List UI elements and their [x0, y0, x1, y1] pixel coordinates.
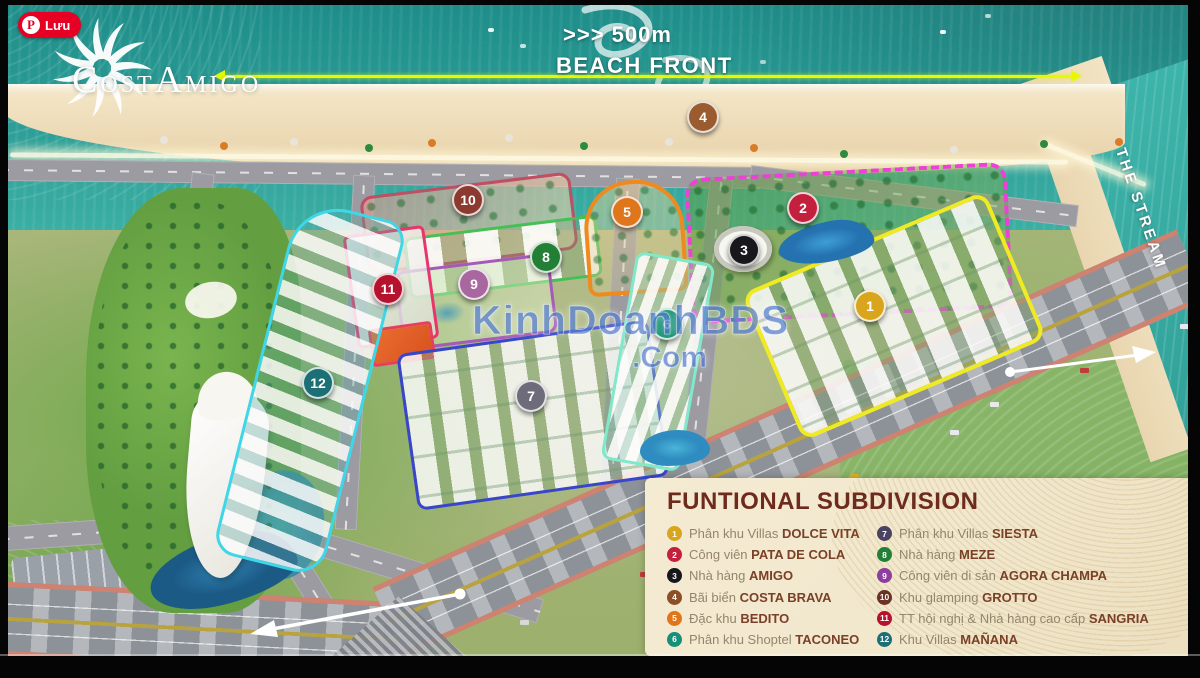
legend-title: FUNTIONAL SUBDIVISION	[667, 488, 978, 516]
legend-badge-7: 7	[877, 526, 892, 541]
legend-item-8: 8Nhà hàng MEZE	[877, 547, 1187, 562]
watermark-line1: KinhDoanhBĐS	[472, 300, 742, 341]
legend-badge-6: 6	[667, 632, 682, 647]
legend-label-11: TT hội nghị & Nhà hàng cao cấp SANGRIA	[899, 611, 1149, 626]
legend-badge-3: 3	[667, 568, 682, 583]
frame-bar	[0, 656, 1200, 678]
legend-item-1: 1Phân khu Villas DOLCE VITA	[667, 526, 872, 541]
beach-distance-label: >>> 500m	[563, 22, 672, 48]
legend-label-5: Đặc khu BEDITO	[689, 611, 789, 626]
legend-item-4: 4Bãi biển COSTA BRAVA	[667, 590, 872, 605]
pinterest-save-button[interactable]: P Lưu	[18, 12, 81, 38]
legend-label-4: Bãi biển COSTA BRAVA	[689, 590, 832, 605]
legend-badge-8: 8	[877, 547, 892, 562]
legend-badge-11: 11	[877, 611, 892, 626]
legend-item-5: 5Đặc khu BEDITO	[667, 611, 872, 626]
save-button-label: Lưu	[45, 18, 70, 33]
legend-panel: FUNTIONAL SUBDIVISION 1Phân khu Villas D…	[645, 478, 1192, 656]
watermark: KinhDoanhBĐS .Com	[472, 300, 742, 373]
legend-badge-4: 4	[667, 590, 682, 605]
frame-bar	[1188, 0, 1200, 678]
legend-column-1: 1Phân khu Villas DOLCE VITA2Công viên PA…	[667, 526, 872, 647]
legend-badge-9: 9	[877, 568, 892, 583]
legend-column-2: 7Phân khu Villas SIESTA8Nhà hàng MEZE9Cô…	[877, 526, 1187, 647]
legend-badge-12: 12	[877, 632, 892, 647]
beach-umbrellas-decoration	[160, 136, 168, 144]
restaurant-amigo-building	[714, 226, 772, 272]
beach-front-label: BEACH FRONT	[556, 53, 733, 79]
legend-badge-5: 5	[667, 611, 682, 626]
legend-item-9: 9Công viên di sản AGORA CHAMPA	[877, 568, 1187, 583]
pinterest-icon: P	[22, 16, 40, 34]
legend-item-10: 10Khu glamping GROTTO	[877, 590, 1187, 605]
legend-badge-1: 1	[667, 526, 682, 541]
legend-label-6: Phân khu Shoptel TACONEO	[689, 632, 859, 647]
legend-badge-10: 10	[877, 590, 892, 605]
watermark-line2: .Com	[632, 343, 742, 373]
legend-badge-2: 2	[667, 547, 682, 562]
legend-item-7: 7Phân khu Villas SIESTA	[877, 526, 1187, 541]
legend-item-3: 3Nhà hàng AMIGO	[667, 568, 872, 583]
legend-label-3: Nhà hàng AMIGO	[689, 568, 793, 583]
traffic-direction-arrow-right	[998, 342, 1163, 382]
legend-label-12: Khu Villas MAÑANA	[899, 632, 1018, 647]
costamigo-logo: COSTAMIGO	[52, 18, 332, 130]
legend-item-2: 2Công viên PATA DE COLA	[667, 547, 872, 562]
legend-item-11: 11TT hội nghị & Nhà hàng cao cấp SANGRIA	[877, 611, 1187, 626]
frame-bar	[0, 0, 1200, 5]
cars-decoration	[520, 620, 529, 625]
logo-text: COSTAMIGO	[72, 58, 261, 102]
legend-label-1: Phân khu Villas DOLCE VITA	[689, 526, 860, 541]
legend-item-6: 6Phân khu Shoptel TACONEO	[667, 632, 872, 647]
legend-label-10: Khu glamping GROTTO	[899, 590, 1038, 605]
legend-label-9: Công viên di sản AGORA CHAMPA	[899, 568, 1107, 583]
legend-label-7: Phân khu Villas SIESTA	[899, 526, 1038, 541]
traffic-direction-arrow-left	[242, 584, 472, 642]
legend-item-12: 12Khu Villas MAÑANA	[877, 632, 1187, 647]
masterplan-screenshot: 123456789101112 >>> 500m BEACH FRONT THE…	[0, 0, 1200, 678]
legend-label-2: Công viên PATA DE COLA	[689, 547, 845, 562]
legend-label-8: Nhà hàng MEZE	[899, 547, 995, 562]
frame-bar	[0, 0, 8, 678]
